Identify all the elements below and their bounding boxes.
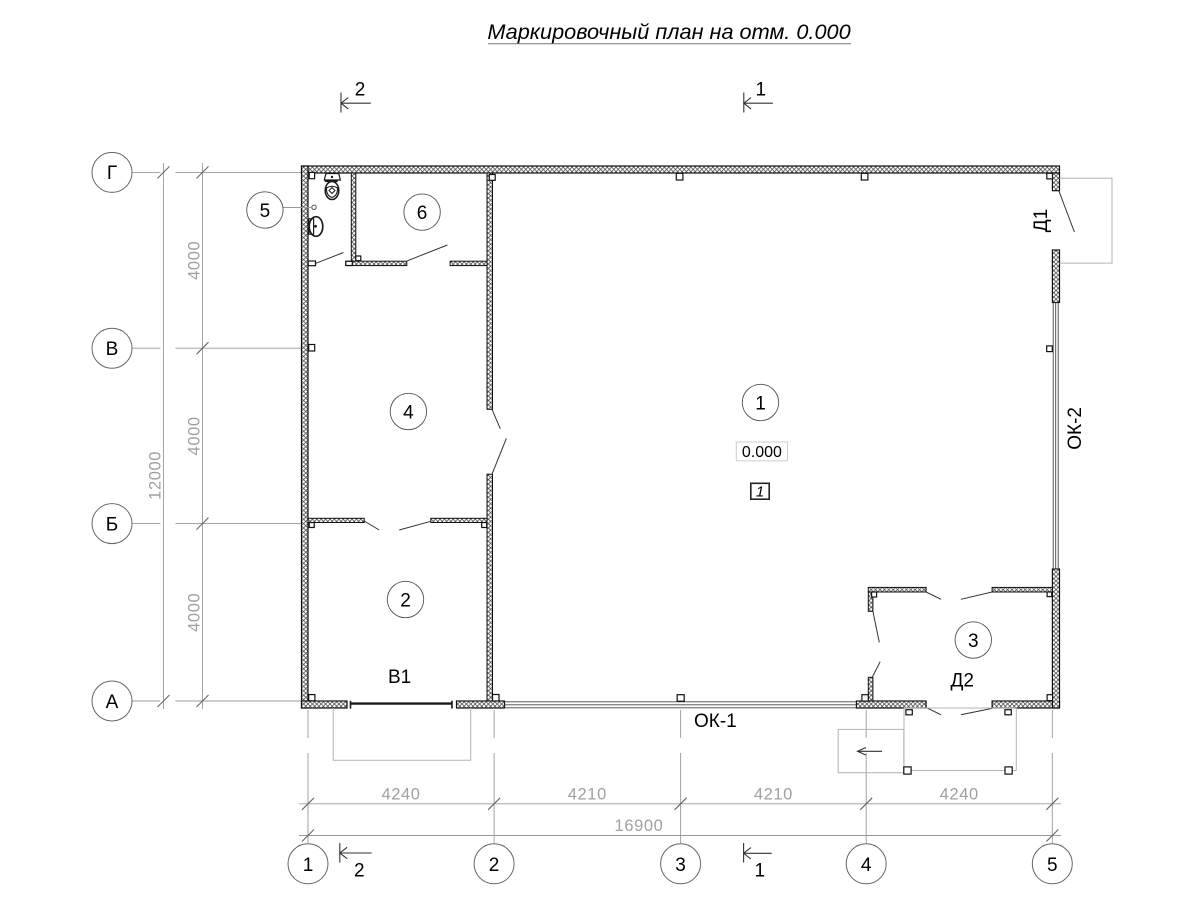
svg-text:3: 3 [675,855,686,876]
svg-text:2: 2 [355,79,366,100]
svg-text:Г: Г [107,163,117,184]
svg-text:2: 2 [400,591,411,612]
svg-text:Д1: Д1 [1031,209,1052,232]
svg-text:1: 1 [756,484,764,501]
svg-text:5: 5 [1047,855,1058,876]
svg-text:0.000: 0.000 [742,444,782,461]
svg-text:2: 2 [489,855,500,876]
svg-text:ОК-2: ОК-2 [1065,407,1086,450]
svg-text:3: 3 [968,631,979,652]
svg-text:6: 6 [417,203,428,224]
svg-text:16900: 16900 [615,817,664,835]
svg-text:В: В [106,339,119,360]
svg-text:4240: 4240 [381,786,420,804]
svg-text:А: А [106,692,119,713]
svg-text:4240: 4240 [940,786,979,804]
svg-text:2: 2 [354,861,365,882]
svg-text:4210: 4210 [754,786,793,804]
svg-text:4000: 4000 [185,416,203,455]
svg-text:Д2: Д2 [951,671,974,692]
svg-text:1: 1 [755,861,766,882]
svg-text:В1: В1 [388,667,411,688]
svg-text:5: 5 [260,201,271,222]
svg-text:Б: Б [106,514,118,535]
svg-text:1: 1 [755,394,766,415]
svg-text:12000: 12000 [147,451,165,500]
svg-text:4000: 4000 [185,593,203,632]
svg-text:1: 1 [756,79,767,100]
svg-text:4210: 4210 [568,786,607,804]
svg-text:4000: 4000 [185,241,203,280]
svg-text:1: 1 [303,855,314,876]
svg-text:4: 4 [861,855,872,876]
svg-text:4: 4 [403,403,414,424]
svg-text:ОК-1: ОК-1 [694,711,737,732]
svg-text:Маркировочный план на отм. 0.0: Маркировочный план на отм. 0.000 [487,19,850,44]
